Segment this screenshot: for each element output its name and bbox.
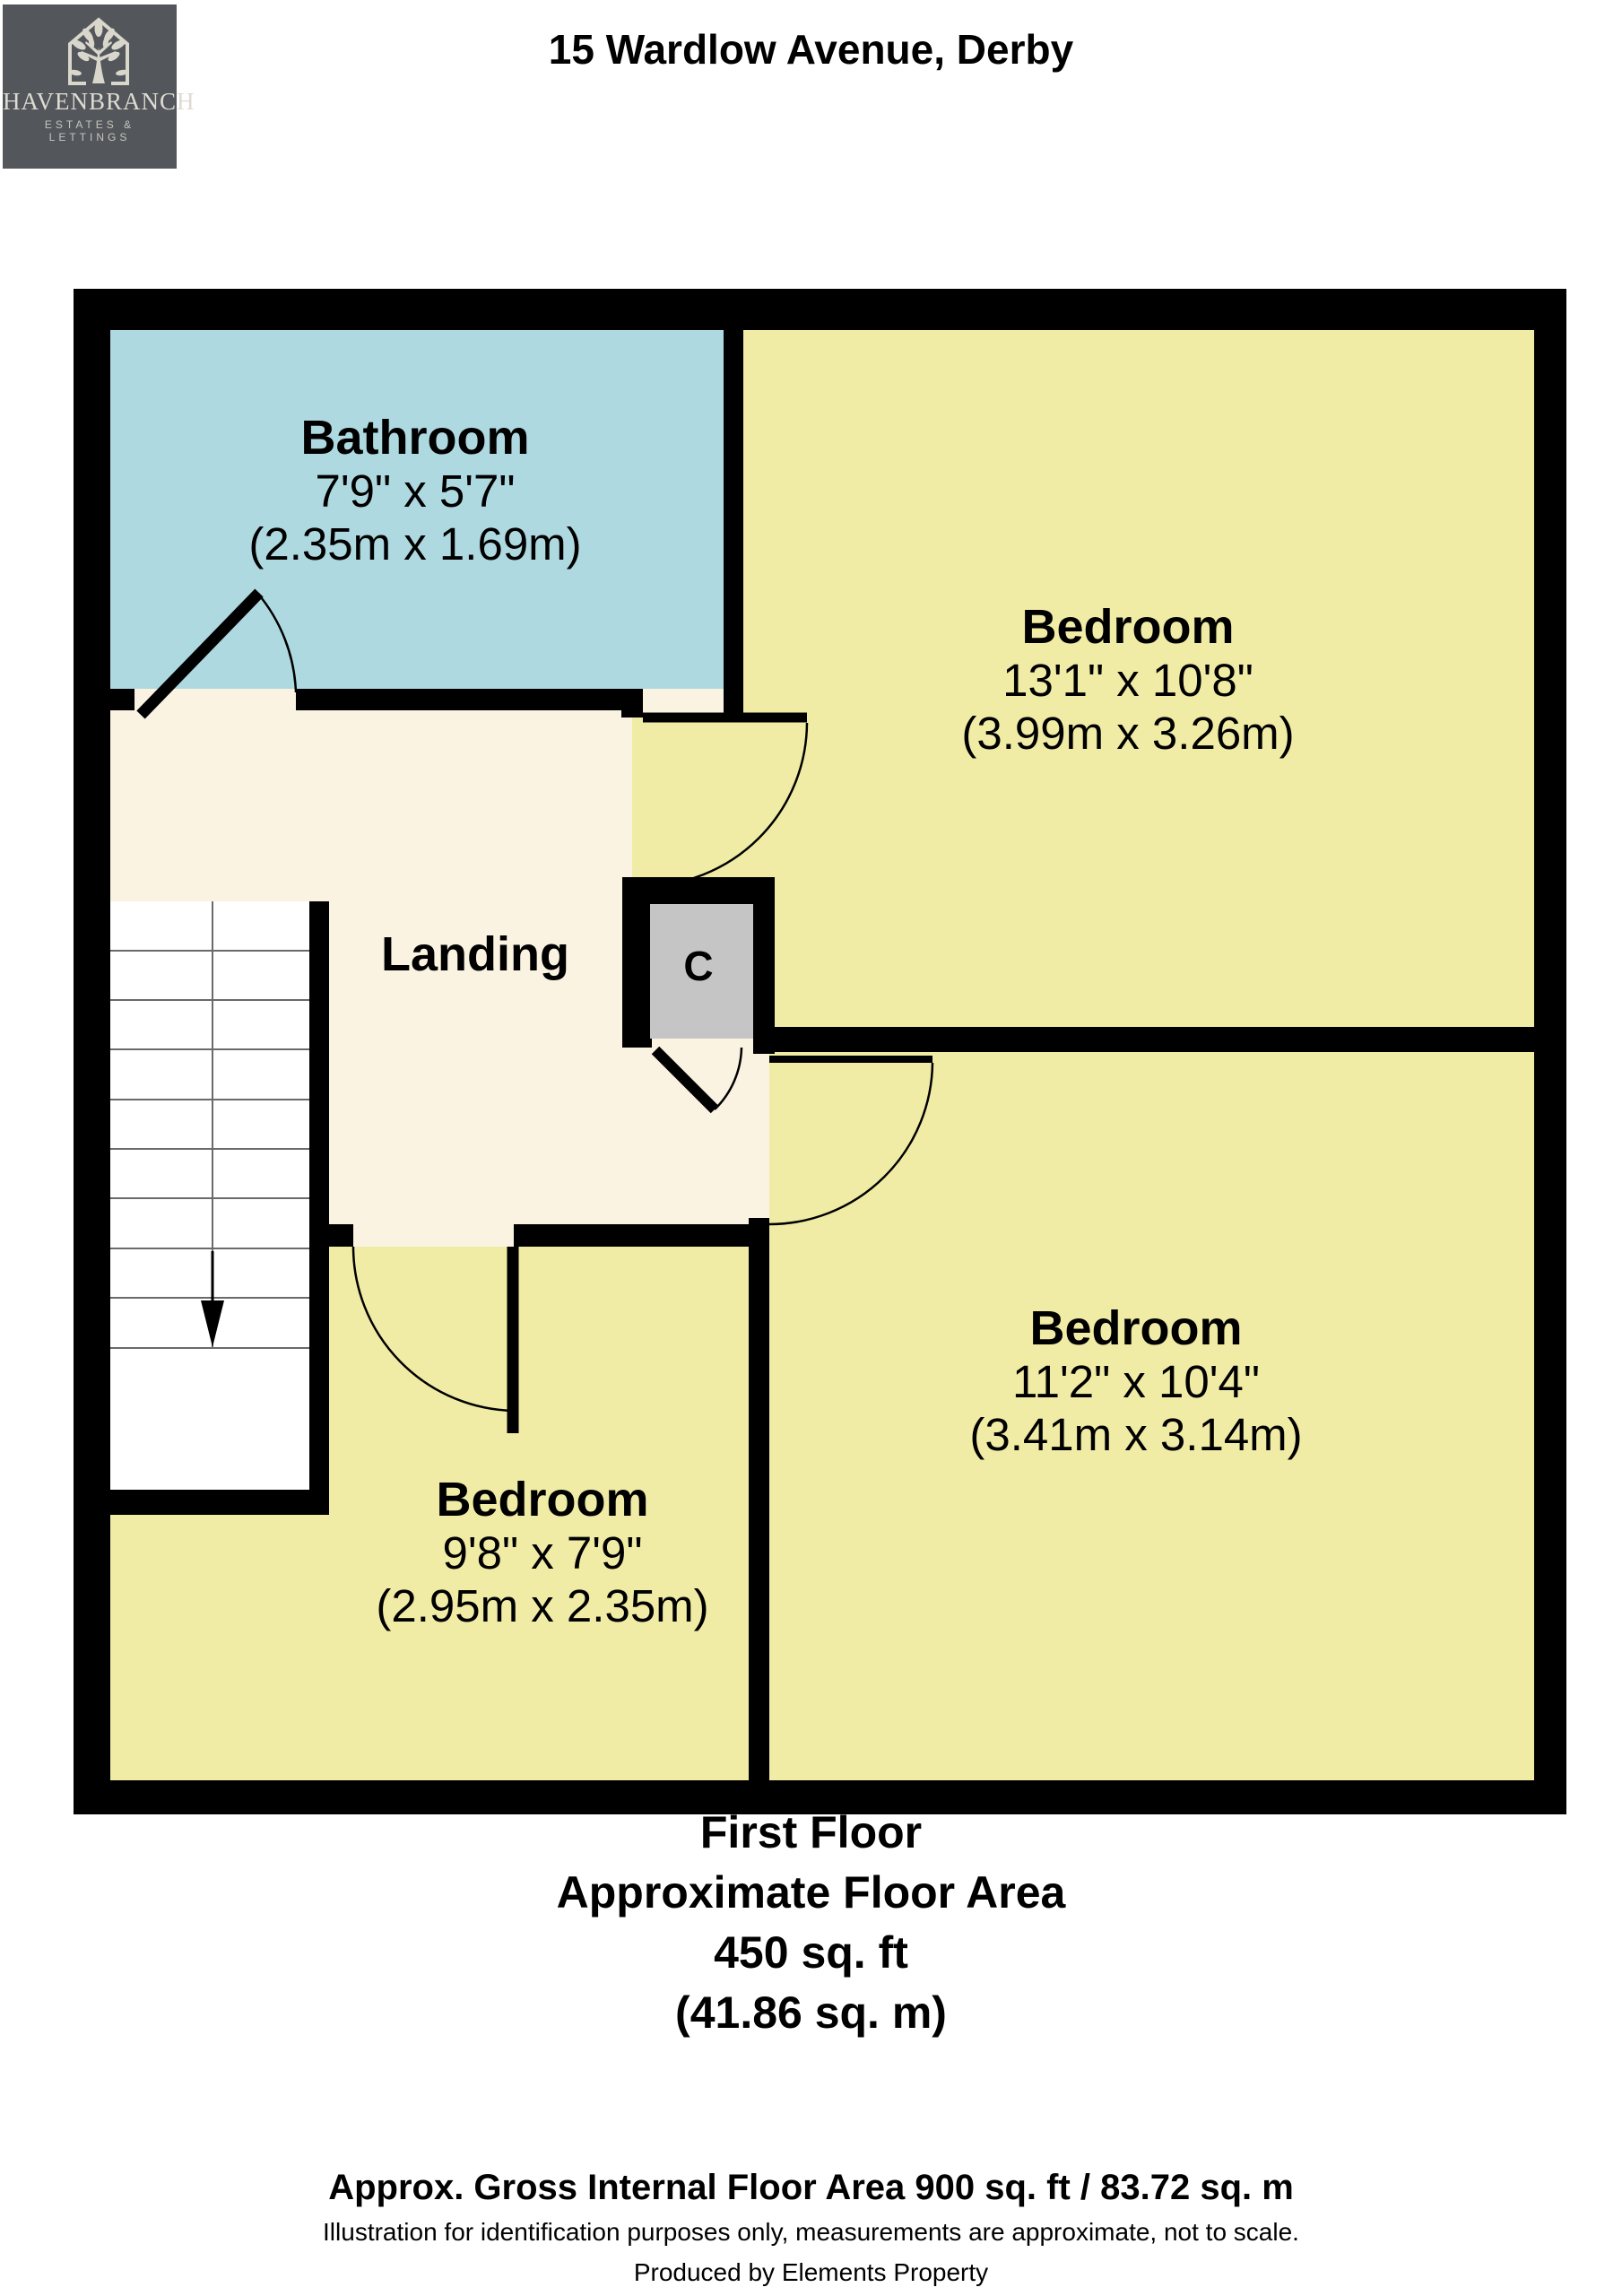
- floor-area-sqm: (41.86 sq. m): [0, 1983, 1622, 2043]
- produced-by: Produced by Elements Property: [0, 2258, 1622, 2287]
- outer-wall-top: [74, 289, 1566, 330]
- room-size-imperial: 11'2" x 10'4": [969, 1355, 1302, 1408]
- floorplan-page: HAVENBRANCH ESTATES & LETTINGS 15 Wardlo…: [0, 0, 1622, 2296]
- bathroom-label: Bathroom 7'9" x 5'7" (2.35m x 1.69m): [248, 412, 581, 570]
- stairwell-right-wall: [309, 901, 329, 1515]
- bottom-left-bedroom-top-wall: [514, 1224, 769, 1247]
- page-title: 15 Wardlow Avenue, Derby: [0, 25, 1622, 74]
- gross-internal-area: Approx. Gross Internal Floor Area 900 sq…: [0, 2168, 1622, 2208]
- disclaimer: Illustration for identification purposes…: [0, 2218, 1622, 2247]
- outer-wall-right: [1534, 289, 1566, 1814]
- floor-area-sqft: 450 sq. ft: [0, 1923, 1622, 1983]
- room-size-imperial: 13'1" x 10'8": [961, 654, 1294, 707]
- bedroom-bottom-left-label: Bedroom 9'8" x 7'9" (2.95m x 2.35m): [376, 1474, 708, 1632]
- landing-label: Landing: [381, 928, 569, 981]
- floor-name: First Floor: [0, 1803, 1622, 1863]
- right-bedrooms-divider-wall: [767, 1027, 1534, 1052]
- logo-tagline-text: ESTATES & LETTINGS: [3, 118, 177, 143]
- room-name: Bedroom: [376, 1474, 708, 1526]
- room-name: Landing: [381, 928, 569, 981]
- cupboard-wall-bottom-stub: [622, 1027, 652, 1048]
- bathroom-bottom-wall-cap: [621, 689, 643, 717]
- room-size-metric: (3.41m x 3.14m): [969, 1408, 1302, 1461]
- bathroom-right-wall: [724, 289, 743, 717]
- floor-area-caption: Approximate Floor Area: [0, 1863, 1622, 1923]
- room-size-metric: (3.99m x 3.26m): [961, 707, 1294, 760]
- bathroom-bottom-wall-stub: [110, 689, 134, 710]
- cupboard-wall-left: [622, 877, 650, 1048]
- room-size-metric: (2.95m x 2.35m): [376, 1579, 708, 1632]
- bathroom-bottom-wall: [296, 689, 643, 710]
- bedroom-top-right-label: Bedroom 13'1" x 10'8" (3.99m x 3.26m): [961, 601, 1294, 760]
- stairwell-bottom-wall: [74, 1490, 329, 1515]
- bottom-left-bedroom-top-wall-stub: [329, 1224, 353, 1247]
- room-name: Bedroom: [969, 1302, 1302, 1355]
- room-size-imperial: 9'8" x 7'9": [376, 1526, 708, 1579]
- cupboard-label: C: [683, 942, 713, 990]
- outer-wall-left: [74, 289, 110, 1814]
- room-size-metric: (2.35m x 1.69m): [248, 517, 581, 570]
- bedroom-bottom-left-floor-lower: [110, 1515, 329, 1780]
- bedroom-bottom-right-label: Bedroom 11'2" x 10'4" (3.41m x 3.14m): [969, 1302, 1302, 1461]
- bottom-bedrooms-divider-wall: [749, 1218, 769, 1780]
- stairwell-floor: [110, 901, 309, 1490]
- room-name: Bedroom: [961, 601, 1294, 654]
- room-size-imperial: 7'9" x 5'7": [248, 465, 581, 517]
- floor-summary: First Floor Approximate Floor Area 450 s…: [0, 1803, 1622, 2043]
- room-name: Bathroom: [248, 412, 581, 465]
- logo-brand-text: HAVENBRANCH: [3, 88, 177, 116]
